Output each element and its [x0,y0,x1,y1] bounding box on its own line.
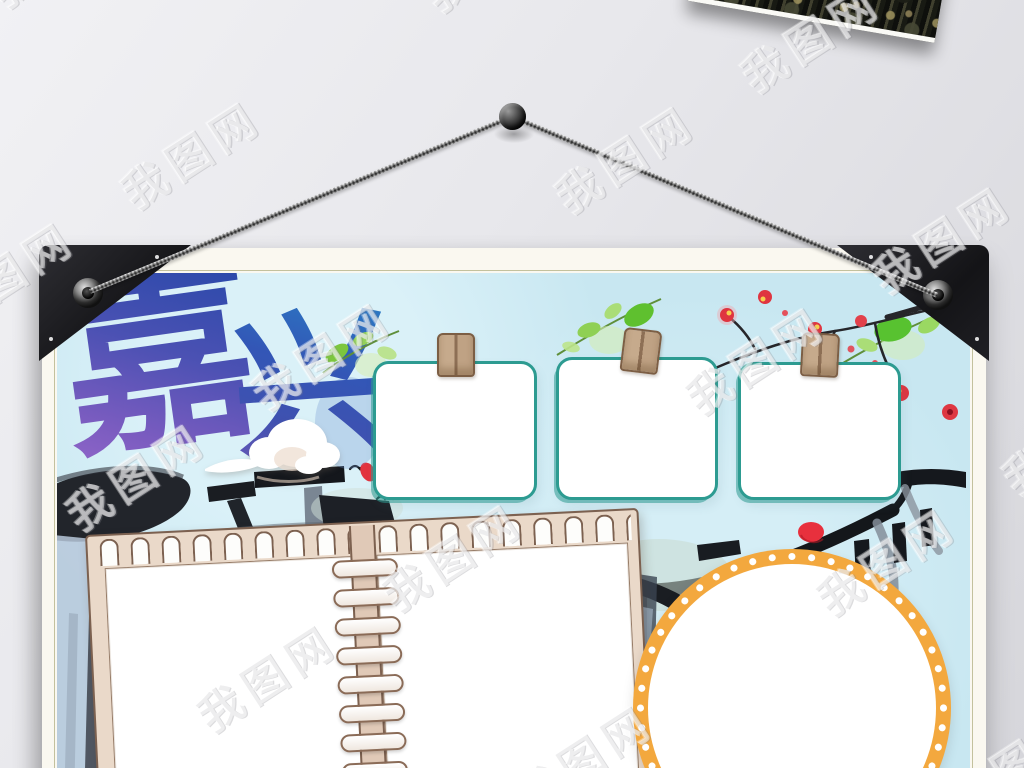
watermark-text: 我图网 [0,0,61,252]
spiral-ring-icon [333,587,400,608]
clothespin-clip-1 [437,333,475,377]
spiral-ring-icon [340,732,407,753]
photo-frame-1 [373,361,537,500]
circle-frame-dots [633,549,951,768]
spiral-hole-arch [285,529,305,557]
spiral-hole-arch [254,531,274,559]
spiral-hole-arch [409,523,429,551]
spiral-ring-icon [332,558,399,579]
grommet-left-icon [73,278,103,308]
poster-content-area: 嘉 兴 [57,273,970,768]
notebook-page-left [105,556,368,768]
hanging-poster-board: 嘉 兴 [42,248,986,768]
stock-template-preview: 嘉 兴 [0,0,1024,768]
spiral-ring-icon [336,645,403,666]
spiral-hole-arch [223,532,243,560]
spiral-hole-arch [316,528,336,556]
spiral-hole-arch [533,517,553,545]
watermark-text: 我图网 [0,0,247,131]
cloud-illustration [197,405,349,497]
push-pin-icon [499,103,526,130]
photo-frame-2 [556,357,718,500]
spiral-hole-arch [192,534,212,562]
spiral-hole-arch [99,538,119,566]
spiral-ring-icon [337,674,404,695]
rooftop-photo-corner [688,0,962,43]
watermark-text: 我图网 [1015,460,1024,768]
clothespin-clip-3 [800,332,840,378]
spiral-hole-arch [130,537,150,565]
spiral-hole-arch [564,516,584,544]
spiral-hole-arch [595,514,615,542]
watermark-text: 我图网 [0,491,19,768]
spiral-hole-arch [378,525,398,553]
spiral-hole-arch [161,535,181,563]
spiral-hole-arch [626,513,632,540]
circle-photo-frame [633,549,951,768]
spiral-ring-icon [334,616,401,637]
spiral-hole-arch [502,519,522,547]
spiral-hole-arch [471,520,491,548]
spiral-ring-icon [339,703,406,724]
clothespin-clip-2 [619,327,662,375]
notebook-page-right [376,542,643,768]
photo-frame-3 [738,362,901,500]
spiral-hole-arch [440,522,460,550]
spiral-notebook [85,508,655,768]
grommet-right-icon [923,280,953,310]
watermark-text: 我图网 [306,0,681,135]
